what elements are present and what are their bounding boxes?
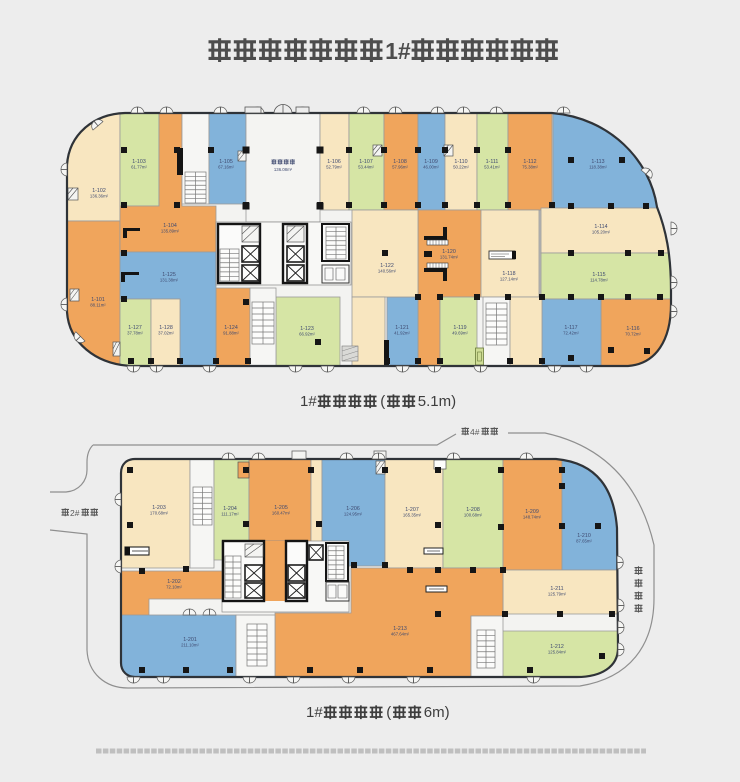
svg-text:57.96m²: 57.96m² bbox=[392, 165, 408, 170]
svg-text:6m): 6m) bbox=[424, 704, 450, 721]
svg-text:111.17m²: 111.17m² bbox=[221, 512, 239, 517]
svg-text:118.38m²: 118.38m² bbox=[589, 165, 607, 170]
svg-text:114.78m²: 114.78m² bbox=[590, 278, 608, 283]
svg-text:4#: 4# bbox=[470, 427, 480, 437]
svg-text:140.56m²: 140.56m² bbox=[378, 269, 397, 274]
svg-text:1#: 1# bbox=[306, 704, 323, 721]
svg-text:131.38m²: 131.38m² bbox=[160, 278, 179, 283]
svg-text:(: ( bbox=[386, 704, 391, 721]
svg-text:105.20m²: 105.20m² bbox=[592, 230, 611, 235]
svg-text:(: ( bbox=[380, 393, 385, 410]
svg-text:467.64m²: 467.64m² bbox=[391, 632, 410, 637]
svg-text:50.22m²: 50.22m² bbox=[453, 165, 469, 170]
svg-text:170.68m²: 170.68m² bbox=[150, 511, 169, 516]
svg-text:87.65m²: 87.65m² bbox=[576, 539, 592, 544]
svg-text:125.79m²: 125.79m² bbox=[548, 592, 567, 597]
svg-text:72.42m²: 72.42m² bbox=[563, 331, 579, 336]
svg-text:125.84m²: 125.84m² bbox=[548, 650, 567, 655]
svg-text:46.00m²: 46.00m² bbox=[423, 165, 439, 170]
svg-text:127.14m²: 127.14m² bbox=[500, 277, 519, 282]
svg-text:124.95m²: 124.95m² bbox=[344, 512, 363, 517]
svg-text:136.36m²: 136.36m² bbox=[90, 194, 109, 199]
svg-text:41.92m²: 41.92m² bbox=[394, 331, 410, 336]
svg-text:37.78m²: 37.78m² bbox=[127, 331, 143, 336]
svg-text:135.89m²: 135.89m² bbox=[161, 229, 180, 234]
svg-text:91.88m²: 91.88m² bbox=[223, 331, 239, 336]
svg-text:1#: 1# bbox=[300, 393, 317, 410]
svg-text:5.1m): 5.1m) bbox=[418, 393, 456, 410]
svg-text:211.10m²: 211.10m² bbox=[181, 643, 199, 648]
svg-text:66.92m²: 66.92m² bbox=[299, 332, 315, 337]
svg-text:72.10m²: 72.10m² bbox=[166, 585, 182, 590]
svg-text:61.77m²: 61.77m² bbox=[131, 165, 147, 170]
svg-text:75.38m²: 75.38m² bbox=[522, 165, 538, 170]
svg-text:160.47m²: 160.47m² bbox=[272, 511, 291, 516]
svg-text:49.69m²: 49.69m² bbox=[452, 331, 468, 336]
svg-text:100.68m²: 100.68m² bbox=[464, 513, 483, 518]
svg-text:148.74m²: 148.74m² bbox=[523, 515, 542, 520]
svg-text:37.02m²: 37.02m² bbox=[158, 331, 174, 336]
svg-text:131.74m²: 131.74m² bbox=[440, 255, 459, 260]
svg-text:2#: 2# bbox=[70, 508, 80, 518]
svg-text:1#: 1# bbox=[385, 38, 411, 64]
svg-text:70.72m²: 70.72m² bbox=[625, 332, 641, 337]
svg-text:165.35m²: 165.35m² bbox=[403, 513, 422, 518]
svg-text:53.41m²: 53.41m² bbox=[484, 165, 500, 170]
svg-text:67.16m²: 67.16m² bbox=[218, 165, 234, 170]
svg-text:52.79m²: 52.79m² bbox=[326, 165, 342, 170]
svg-text:88.11m²: 88.11m² bbox=[90, 303, 106, 308]
svg-text:136.08m²: 136.08m² bbox=[274, 167, 293, 172]
svg-text:53.44m²: 53.44m² bbox=[358, 165, 374, 170]
